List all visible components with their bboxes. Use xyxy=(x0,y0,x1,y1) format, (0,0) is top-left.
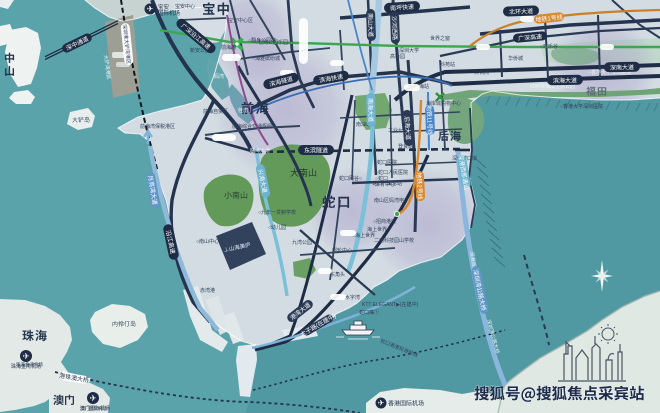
svg-text:九湾公园: 九湾公园 xyxy=(292,239,312,246)
svg-text:宝安中心区: 宝安中心区 xyxy=(228,17,253,24)
svg-text:✈: ✈ xyxy=(378,399,385,408)
svg-text:赤湾港: 赤湾港 xyxy=(200,287,215,294)
svg-text:✈: ✈ xyxy=(147,5,154,14)
svg-text:东滨隧道: 东滨隧道 xyxy=(304,147,328,155)
svg-text:○南山中心区: ○南山中心区 xyxy=(196,238,224,245)
svg-text:珠海金湾机场: 珠海金湾机场 xyxy=(11,363,41,370)
svg-text:水字湾: 水字湾 xyxy=(345,294,360,301)
svg-text:妈湾: 妈湾 xyxy=(214,73,224,80)
svg-text:○蛇口医院: ○蛇口医院 xyxy=(374,159,397,166)
svg-text:南山区妈湾电厂: 南山区妈湾电厂 xyxy=(374,197,409,204)
svg-text:○招商港湾: ○招商港湾 xyxy=(373,218,396,225)
svg-text:蛇口嘴①: 蛇口嘴① xyxy=(359,309,379,316)
svg-text:○蛇口人民医院: ○蛇口人民医院 xyxy=(375,169,408,176)
svg-text:前海自贸区: 前海自贸区 xyxy=(203,108,228,115)
svg-text:○欢乐谷: ○欢乐谷 xyxy=(540,43,558,50)
svg-text:蛇口网谷○: 蛇口网谷○ xyxy=(339,175,362,182)
svg-text:国际机场: 国际机场 xyxy=(158,9,181,17)
svg-text:高新园: 高新园 xyxy=(390,53,405,60)
svg-text:○幼儿园: ○幼儿园 xyxy=(268,224,286,231)
svg-text:○九年一贯制学校: ○九年一贯制学校 xyxy=(258,209,296,216)
svg-text:宝安中心: 宝安中心 xyxy=(175,3,195,10)
svg-text:○香港大学深圳医院: ○香港大学深圳医院 xyxy=(560,103,603,110)
svg-text:体育中心: 体育中心 xyxy=(375,181,395,188)
svg-text:东角头: 东角头 xyxy=(330,271,345,278)
svg-text:临海大道: 临海大道 xyxy=(250,147,270,154)
svg-text:海上世界: 海上世界 xyxy=(367,226,387,233)
svg-text:前海湾保税港区: 前海湾保税港区 xyxy=(140,123,175,130)
svg-text:香港国际机场: 香港国际机场 xyxy=(388,400,424,408)
svg-text:澳门国际机场: 澳门国际机场 xyxy=(80,405,110,412)
svg-text:宝安: 宝安 xyxy=(158,3,170,11)
svg-text:○蛇口: ○蛇口 xyxy=(375,175,388,182)
svg-text:前海综合交通枢纽: 前海综合交通枢纽 xyxy=(232,123,272,130)
svg-text:华侨城: 华侨城 xyxy=(508,55,523,62)
svg-text:白石洲: 白石洲 xyxy=(474,69,489,76)
svg-text:科苑站: 科苑站 xyxy=(440,61,455,68)
svg-text:○深圳大学: ○深圳大学 xyxy=(396,47,419,54)
svg-text:二南科技园山学校: 二南科技园山学校 xyxy=(374,237,414,244)
svg-text:前海湾: 前海湾 xyxy=(221,44,236,51)
svg-text:世界之窗: 世界之窗 xyxy=(430,35,450,42)
svg-text:✈: ✈ xyxy=(89,393,97,403)
svg-text:桂湾: 桂湾 xyxy=(238,107,248,114)
svg-text:✈: ✈ xyxy=(22,351,30,361)
svg-text:○松岗公园乐园①: ○松岗公园乐园① xyxy=(255,39,293,46)
svg-text:KTT ELEGANT▶(在建中): KTT ELEGANT▶(在建中) xyxy=(362,301,419,308)
svg-text:○海雅缤纷城: ○海雅缤纷城 xyxy=(252,55,280,62)
svg-text:邮轮中心: 邮轮中心 xyxy=(332,247,352,254)
